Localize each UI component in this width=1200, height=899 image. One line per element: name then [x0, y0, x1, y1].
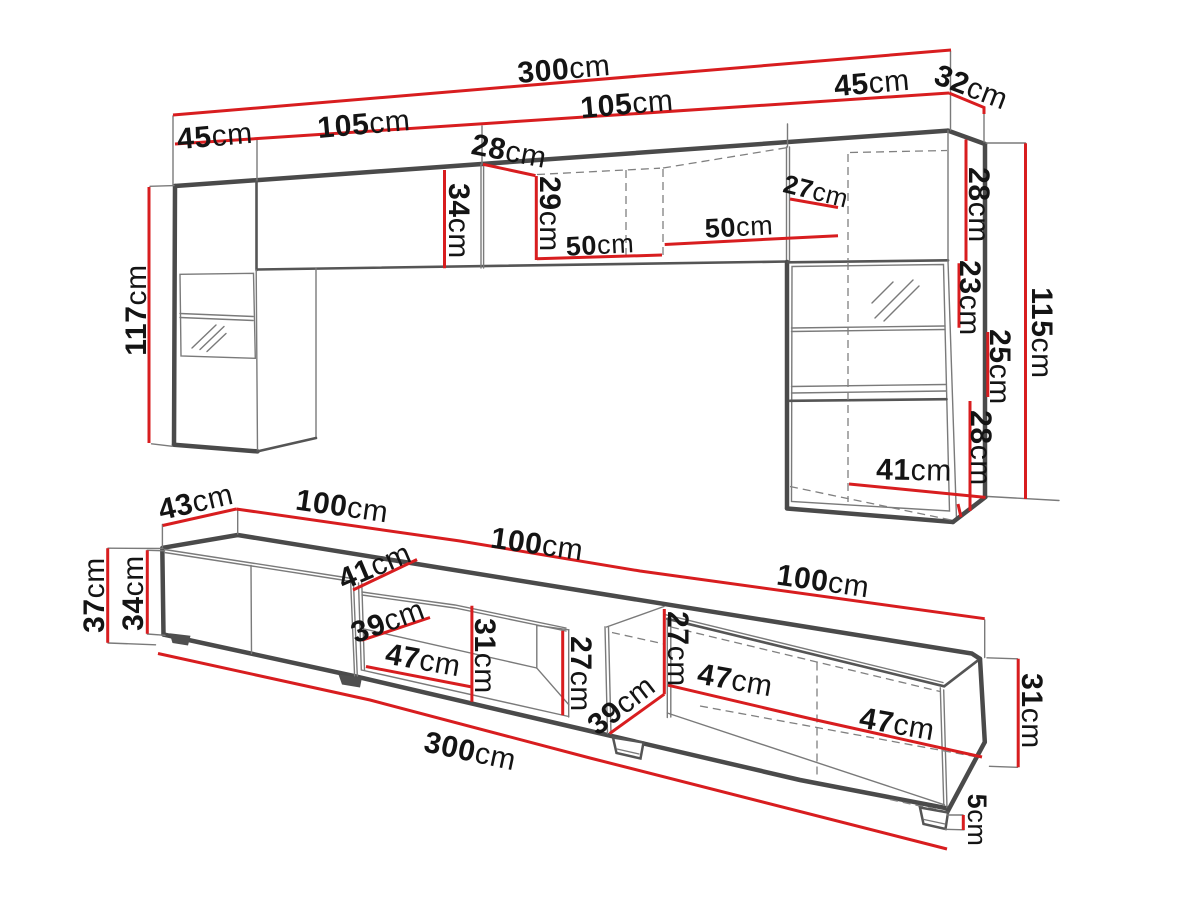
svg-text:50cm: 50cm — [565, 228, 635, 262]
svg-text:34cm: 34cm — [117, 555, 150, 631]
svg-text:27cm: 27cm — [564, 636, 597, 712]
svg-text:29cm: 29cm — [533, 176, 566, 252]
svg-text:41cm: 41cm — [876, 453, 952, 487]
svg-text:45cm: 45cm — [833, 64, 911, 103]
svg-text:115cm: 115cm — [1025, 287, 1058, 378]
svg-text:5cm: 5cm — [962, 794, 992, 847]
svg-text:28cm: 28cm — [964, 410, 997, 486]
svg-text:50cm: 50cm — [704, 210, 774, 244]
svg-text:28cm: 28cm — [962, 167, 995, 243]
svg-text:34cm: 34cm — [442, 183, 475, 259]
svg-text:31cm: 31cm — [468, 618, 501, 694]
svg-text:25cm: 25cm — [983, 329, 1016, 405]
svg-text:31cm: 31cm — [1015, 673, 1048, 749]
svg-text:117cm: 117cm — [120, 264, 153, 355]
svg-text:37cm: 37cm — [78, 557, 111, 633]
svg-text:27cm: 27cm — [661, 611, 694, 687]
svg-text:45cm: 45cm — [176, 117, 254, 156]
svg-text:23cm: 23cm — [953, 260, 986, 336]
